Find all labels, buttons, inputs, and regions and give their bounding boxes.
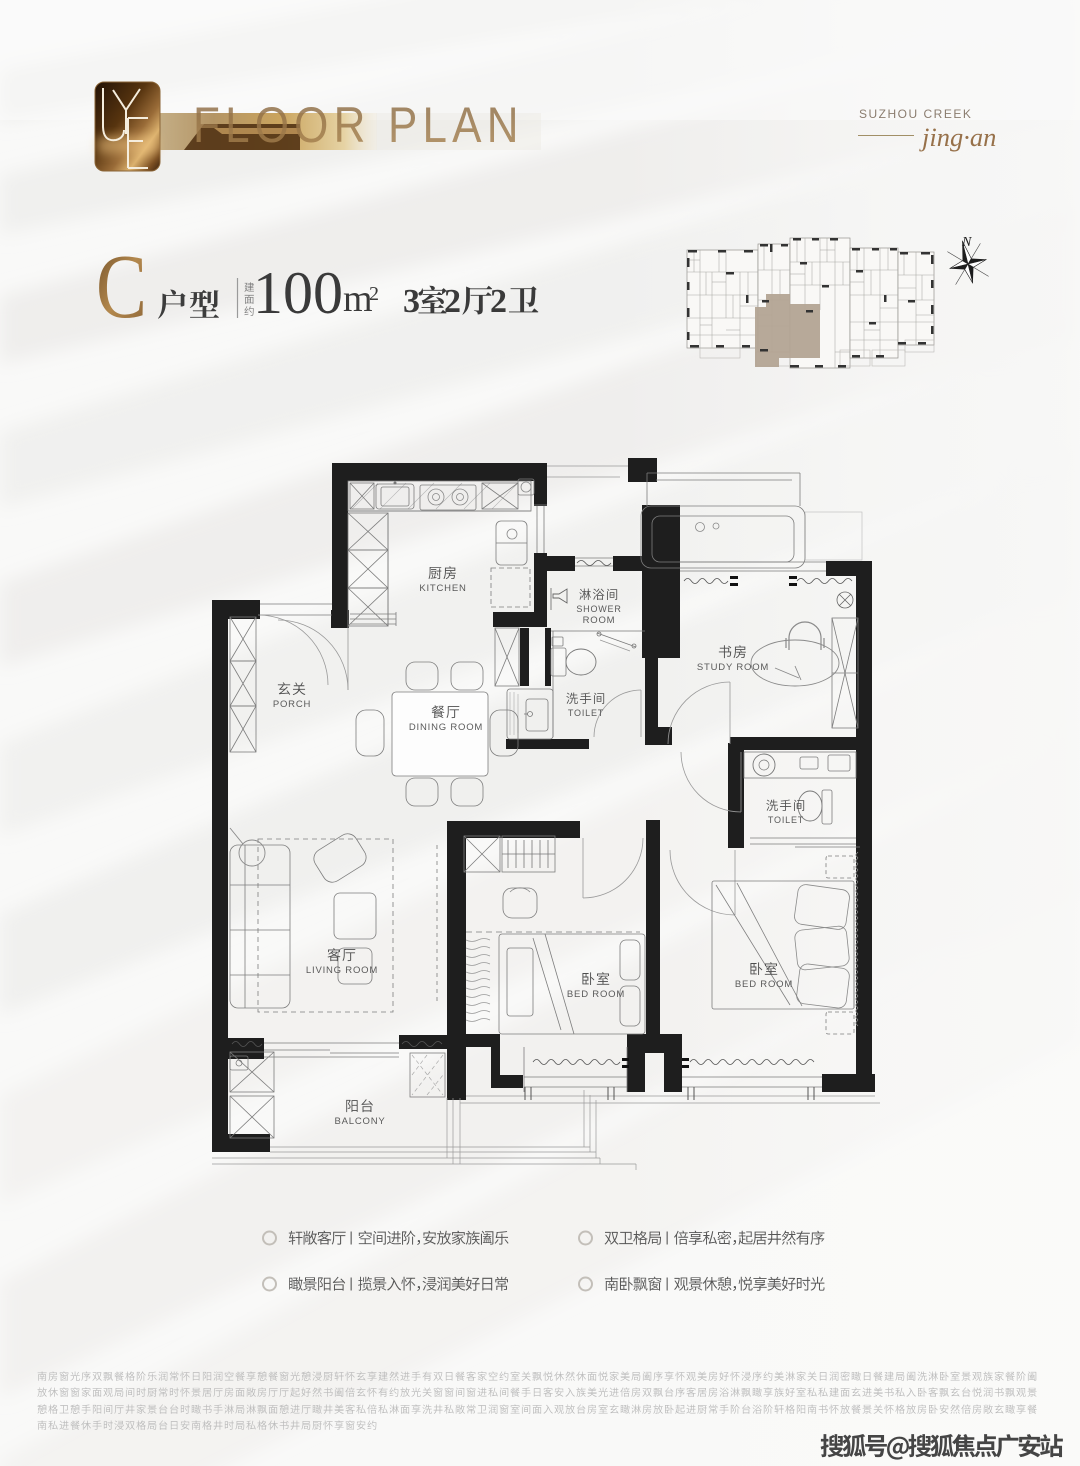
svg-text:FLOOR PLAN: FLOOR PLAN [193, 98, 524, 153]
svg-text:TOILET: TOILET [768, 815, 804, 825]
svg-text:SUZHOU CREEK: SUZHOU CREEK [859, 107, 972, 121]
svg-text:100: 100 [253, 260, 343, 326]
svg-text:2: 2 [444, 283, 461, 320]
svg-text:PORCH: PORCH [273, 699, 311, 710]
svg-text:STUDY ROOM: STUDY ROOM [697, 662, 769, 673]
svg-text:BALCONY: BALCONY [334, 1116, 385, 1127]
svg-text:C: C [96, 237, 147, 338]
svg-text:3: 3 [403, 283, 420, 320]
svg-text:N: N [961, 235, 972, 250]
svg-text:BED ROOM: BED ROOM [735, 979, 793, 990]
svg-text:BED ROOM: BED ROOM [567, 989, 625, 1000]
svg-text:ROOM: ROOM [583, 615, 616, 626]
svg-text:2: 2 [490, 283, 507, 320]
svg-text:2: 2 [369, 283, 379, 305]
svg-text:LIVING ROOM: LIVING ROOM [306, 965, 378, 976]
svg-text:TOILET: TOILET [568, 708, 604, 718]
svg-text:DINING ROOM: DINING ROOM [409, 722, 483, 733]
svg-text:jing·an: jing·an [919, 122, 996, 152]
svg-text:SHOWER: SHOWER [576, 604, 621, 614]
svg-text:KITCHEN: KITCHEN [419, 583, 466, 594]
